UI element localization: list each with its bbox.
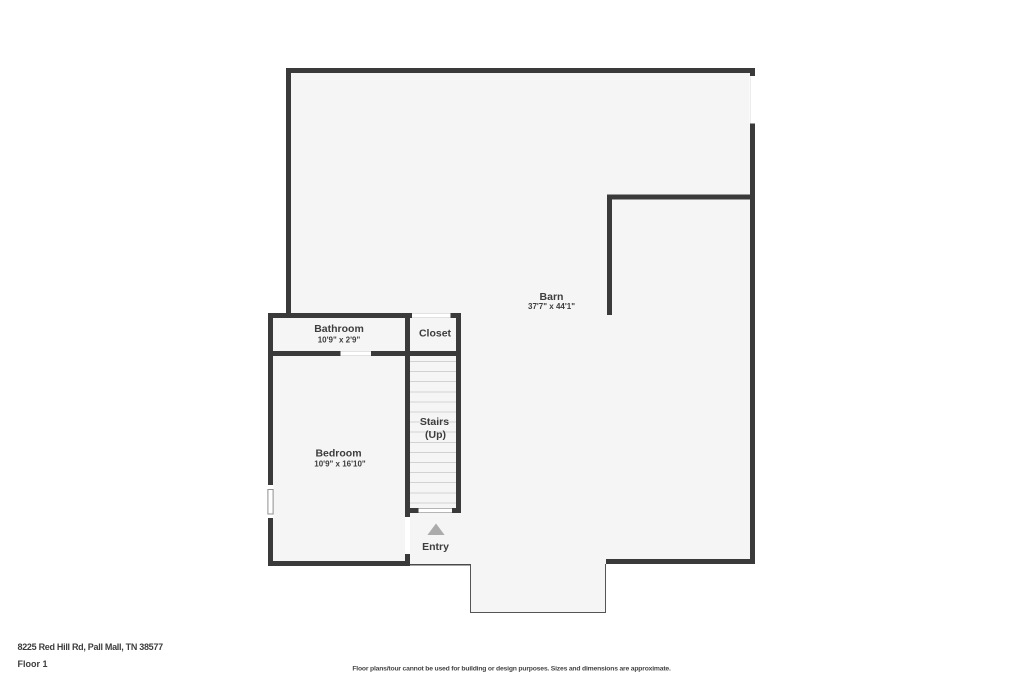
svg-text:Bedroom: Bedroom (315, 448, 361, 460)
svg-text:10'9" x 2'9": 10'9" x 2'9" (318, 336, 361, 345)
svg-text:Stairs: Stairs (420, 416, 449, 428)
svg-text:(Up): (Up) (425, 429, 446, 441)
svg-text:Closet: Closet (419, 328, 452, 340)
svg-text:Entry: Entry (422, 541, 449, 553)
svg-text:Floor plans/tour cannot be use: Floor plans/tour cannot be used for buil… (352, 666, 671, 673)
svg-text:Bathroom: Bathroom (314, 323, 364, 335)
svg-text:8225 Red Hill Rd, Pall Mall, T: 8225 Red Hill Rd, Pall Mall, TN 38577 (18, 642, 164, 652)
svg-text:37'7" x 44'1": 37'7" x 44'1" (528, 302, 575, 311)
svg-text:Floor 1: Floor 1 (18, 659, 48, 669)
svg-text:10'9" x 16'10": 10'9" x 16'10" (314, 460, 366, 469)
